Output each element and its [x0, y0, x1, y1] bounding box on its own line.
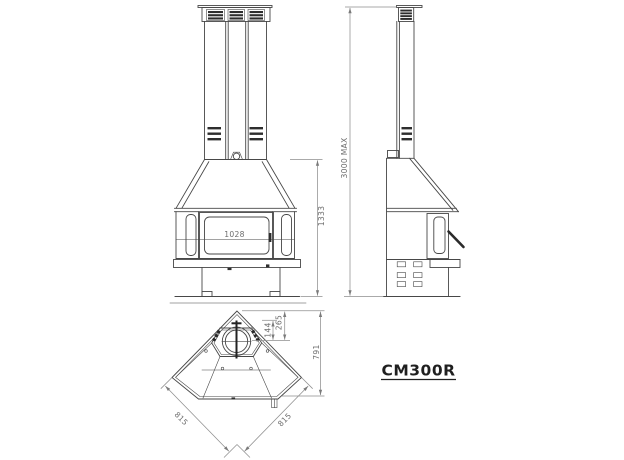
- damper-knob: [231, 152, 243, 159]
- dimension-label-plan-depth: 791: [312, 344, 321, 359]
- dimension-label-flue-offset-outer: 265: [274, 315, 283, 330]
- dimension-label-max-height: 3000 MAX: [340, 137, 349, 178]
- side-lower-louvers: [402, 127, 413, 140]
- dimension-3000-max: 3000 MAX: [340, 7, 397, 297]
- bench-mark-left: [228, 268, 232, 270]
- left-side-vent: [186, 215, 196, 256]
- dimension-1028: 1028: [224, 230, 245, 239]
- hood: [175, 160, 297, 212]
- plan-view: [170, 303, 306, 408]
- side-door-glass: [434, 217, 445, 254]
- louver-bars: [208, 11, 263, 20]
- dimension-label-body-height: 1333: [317, 206, 326, 227]
- side-bench-slab: [430, 260, 460, 268]
- side-vent-grid: [397, 262, 422, 287]
- flue-pipe: [222, 321, 251, 359]
- front-latch-mark: [232, 397, 236, 399]
- chimney-top-vent-band: [202, 8, 270, 22]
- bench: [174, 260, 301, 268]
- right-foot: [270, 292, 280, 297]
- left-foot: [202, 292, 212, 297]
- model-name-text: CM300R: [381, 362, 455, 380]
- plan-handle-stub: [272, 399, 277, 408]
- dimension-label-side-right: 815: [276, 411, 293, 428]
- fireplace-dimension-drawing: 1333 3000 MAX 791 265 144 815 815 1028 C…: [0, 0, 624, 460]
- side-door-handle: [449, 232, 464, 248]
- dimension-label-side-left: 815: [173, 410, 190, 427]
- front-view: [174, 6, 301, 297]
- dimension-1333: 1333: [290, 160, 326, 297]
- dimension-815-left: 815: [161, 378, 237, 458]
- dimension-label-glass-width: 1028: [224, 230, 245, 239]
- plinth: [202, 268, 280, 297]
- model-label: CM300R: [381, 362, 456, 380]
- right-side-vent: [282, 215, 292, 256]
- dimension-label-flue-offset-inner: 144: [263, 322, 272, 337]
- bench-mark-right: [266, 264, 269, 267]
- door-handle: [269, 233, 272, 242]
- side-view: [384, 6, 464, 297]
- side-chimney-shaft: [397, 22, 414, 159]
- dimension-815-right: 815: [237, 378, 313, 458]
- technical-drawing-page: 1333 3000 MAX 791 265 144 815 815 1028 C…: [0, 0, 624, 460]
- side-top-vent: [399, 8, 414, 22]
- shaft-lower-louvers: [208, 127, 264, 140]
